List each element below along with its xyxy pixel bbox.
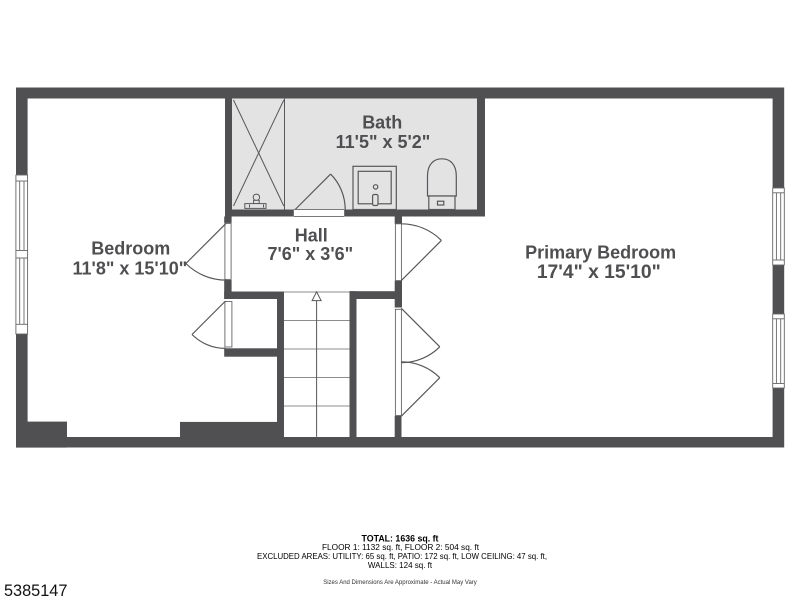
svg-text:Bedroom: Bedroom (91, 239, 170, 259)
svg-text:11'5" x 5'2": 11'5" x 5'2" (336, 132, 431, 152)
svg-text:11'8" x 15'10": 11'8" x 15'10" (73, 258, 188, 278)
svg-text:EXCLUDED AREAS: UTILITY: 65 sq: EXCLUDED AREAS: UTILITY: 65 sq. ft, PATI… (257, 552, 547, 561)
svg-text:Primary Bedroom: Primary Bedroom (525, 243, 676, 263)
svg-text:Sizes And Dimensions Are Appro: Sizes And Dimensions Are Approximate - A… (323, 580, 477, 586)
svg-text:5385147: 5385147 (4, 582, 67, 600)
svg-text:WALLS: 124 sq. ft: WALLS: 124 sq. ft (368, 561, 433, 570)
svg-text:7'6" x 3'6": 7'6" x 3'6" (267, 244, 353, 264)
svg-text:FLOOR 1: 1132 sq. ft, FLOOR 2:: FLOOR 1: 1132 sq. ft, FLOOR 2: 504 sq. f… (322, 542, 480, 552)
svg-text:Hall: Hall (295, 226, 328, 246)
svg-text:Bath: Bath (362, 113, 402, 133)
svg-text:17'4" x 15'10": 17'4" x 15'10" (537, 262, 661, 283)
